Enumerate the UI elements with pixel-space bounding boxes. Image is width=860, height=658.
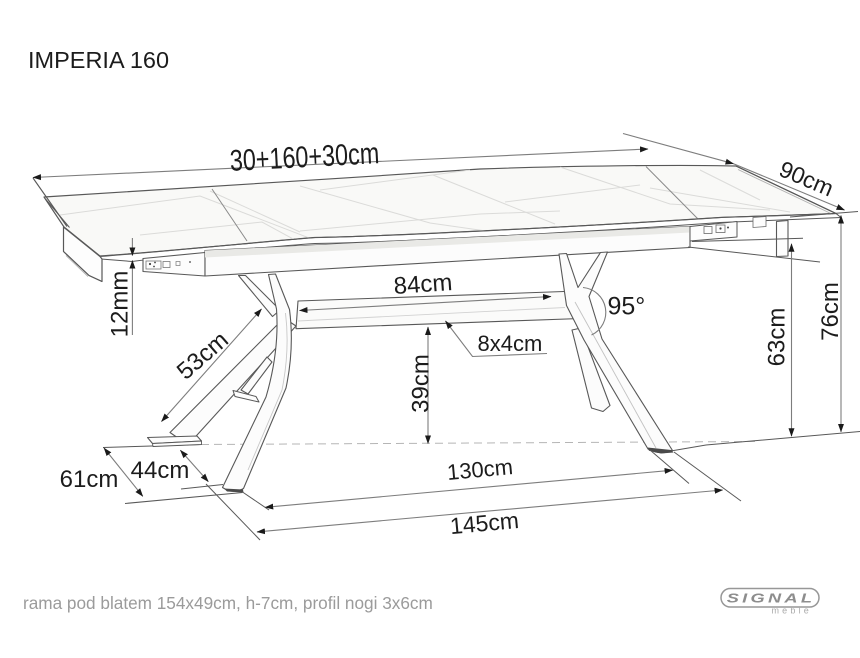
svg-text:61cm: 61cm [60, 466, 119, 493]
svg-text:12mm: 12mm [107, 271, 134, 338]
svg-text:84cm: 84cm [393, 269, 453, 300]
svg-text:SIGNAL: SIGNAL [727, 592, 816, 606]
svg-text:63cm: 63cm [764, 308, 791, 367]
svg-text:95°: 95° [608, 293, 646, 321]
svg-text:IMPERIA 160: IMPERIA 160 [28, 47, 169, 73]
svg-text:meble: meble [771, 606, 812, 616]
svg-text:76cm: 76cm [817, 282, 844, 341]
svg-text:8x4cm: 8x4cm [478, 331, 543, 356]
svg-text:rama pod blatem 154x49cm, h-7c: rama pod blatem 154x49cm, h-7cm, profil … [23, 593, 433, 613]
svg-text:44cm: 44cm [131, 457, 190, 484]
svg-text:39cm: 39cm [408, 354, 435, 413]
